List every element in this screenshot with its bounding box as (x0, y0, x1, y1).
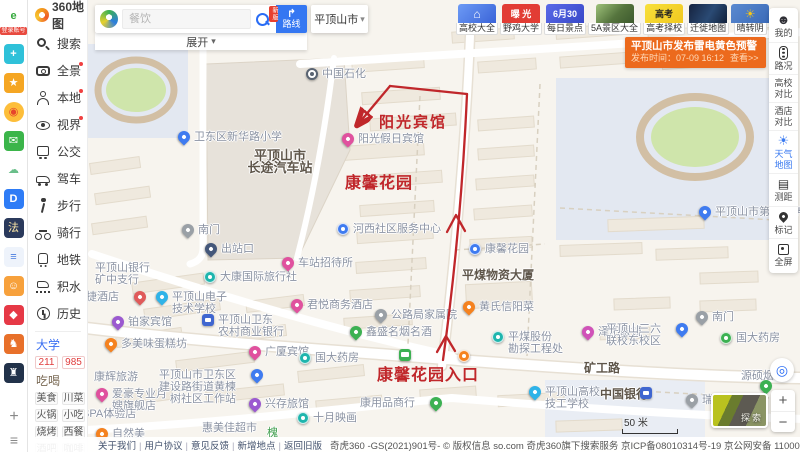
sidebar-item-car[interactable]: 驾车 (35, 165, 87, 192)
tool-label: 酒店对比 (773, 106, 794, 127)
pin-icon (777, 210, 790, 223)
poi-marker (337, 223, 349, 235)
poi-marker (373, 307, 390, 324)
red-app-icon[interactable]: ◆ (4, 305, 24, 325)
food-tag[interactable]: 火锅 (35, 409, 58, 422)
poi-marker (154, 289, 171, 306)
footer-link[interactable]: 关于我们 (98, 441, 136, 452)
chip-label: 高校大全 (456, 23, 498, 35)
chip-gaokao[interactable]: 高考高考择校 (643, 4, 685, 35)
tag-985[interactable]: 985 (62, 356, 85, 369)
poi-label: 车站招待所 (298, 257, 353, 269)
tool-label: 全屏 (773, 257, 794, 268)
food-tag[interactable]: 小吃 (62, 409, 85, 422)
tag-211[interactable]: 211 (35, 356, 58, 369)
poi-label: 公路局家属院 (391, 309, 457, 321)
favorites-star-icon[interactable]: ★ (4, 73, 24, 93)
poi-marker (694, 309, 711, 326)
food-tag[interactable]: 川菜 (62, 392, 85, 405)
poi-label: 康馨花园 (485, 243, 529, 255)
browser-sidebar: e登录账号+★◉✉☁D法≡☺◆♞♜+ ≡ (0, 0, 28, 452)
alert-view-link[interactable]: 查看>> (730, 53, 759, 64)
sidebar-item-flood[interactable]: 积水 (35, 273, 87, 300)
red-dot-badge (79, 116, 83, 120)
divider (35, 331, 81, 332)
chip-label: 高考择校 (643, 23, 685, 35)
sidebar-item-label: 视界 (57, 116, 81, 133)
poi-label: 平顶山电子技术学校 (172, 291, 227, 315)
expand-bar[interactable]: 展开 (95, 33, 307, 50)
chip-label: 迁徙地图 (687, 23, 729, 35)
poi-marker (697, 204, 714, 221)
label-spa-store[interactable]: SPA体验店 (82, 408, 136, 420)
poi-marker (280, 255, 297, 272)
poi-label: 大康国际旅行社 (220, 271, 297, 283)
browser-e-logo[interactable]: e (4, 6, 24, 26)
chip-label: 晴转阴 (734, 23, 767, 35)
alert-title: 平顶山市发布雷电黄色预警 (631, 40, 760, 53)
poi-label: 康辉旅游 (94, 371, 138, 383)
poi-marker (469, 243, 481, 255)
poi-marker (340, 131, 357, 148)
history-icon (35, 306, 51, 322)
satellite-toggle-thumbnail[interactable]: 探索 (711, 393, 768, 428)
tool-label: 路况 (773, 61, 794, 72)
section-title-university: 大学 (36, 336, 87, 353)
expose-tile-image: 曝 光 (502, 4, 540, 23)
poi-marker (110, 314, 127, 331)
ruler-icon (778, 175, 789, 193)
poi-label: 君悦商务酒店 (307, 299, 373, 311)
poi-marker (180, 222, 197, 239)
walk-icon (35, 198, 51, 214)
sidebar-item-search[interactable]: 搜索 (35, 30, 87, 57)
sidebar-item-label: 驾车 (57, 170, 81, 187)
chip-daily[interactable]: 6月30每日景点 (544, 4, 586, 35)
label-huimeijia-market[interactable]: 惠美佳超市 (202, 422, 257, 434)
poi-label: 兴存旅馆 (265, 398, 309, 410)
uni-tile-image: ⌂ (458, 4, 496, 23)
sidebar-item-walk[interactable]: 步行 (35, 192, 87, 219)
poi-label: 卫东区新华路小学 (194, 131, 282, 143)
sun-icon (778, 132, 790, 150)
poi-marker (527, 384, 544, 401)
sidebar-item-label: 全景 (57, 62, 81, 79)
sidebar-item-pano[interactable]: 全景 (35, 57, 87, 84)
poi-label: 平顶山卫东农村商业银行 (218, 314, 284, 338)
poi-marker (299, 352, 311, 364)
poi-label: 南门 (712, 311, 734, 323)
poi-marker (94, 386, 111, 403)
tool-高校对比[interactable]: 高校对比 (769, 74, 798, 102)
chip-uni[interactable]: ⌂高校大全 (456, 4, 498, 35)
footer-links: 关于我们|用户协议|意见反馈|新增地点|返回旧版 (98, 438, 322, 452)
chip-weather[interactable]: ☀晴转阴 (731, 4, 769, 35)
sidebar-menu: 搜索全景本地视界公交驾车步行骑行地铁积水历史 (35, 30, 87, 327)
flood-icon (35, 279, 51, 295)
poi-label: 黄氏信阳菜 (479, 301, 534, 313)
chip-expose[interactable]: 曝 光野鸡大学 (500, 4, 542, 35)
chip-migrate[interactable]: 迁徙地图 (687, 4, 729, 35)
game-fight-icon[interactable]: ♞ (4, 334, 24, 354)
poi-label: 出站口 (221, 243, 254, 255)
add-app-button[interactable]: + (0, 408, 28, 426)
poi-marker (176, 129, 193, 146)
tool-label: 标记 (773, 225, 794, 236)
poi-marker (247, 396, 264, 413)
screen-icon (778, 244, 789, 255)
sidebar-item-label: 本地 (57, 89, 81, 106)
red-dot-badge (79, 62, 83, 66)
poi-marker (428, 395, 445, 412)
poi-marker (306, 68, 318, 80)
local-icon (35, 90, 51, 106)
search-card: 新版 ↱ 路线 (95, 5, 307, 33)
food-tag[interactable]: 美食 (35, 392, 58, 405)
game-monkey-icon[interactable]: ☺ (4, 276, 24, 296)
daily-tile-image: 6月30 (546, 4, 584, 23)
app-logo-text: 360地图 (52, 0, 87, 32)
tool-label: 天气地图 (773, 149, 794, 170)
sidebar-item-history[interactable]: 历史 (35, 300, 87, 327)
tool-酒店对比[interactable]: 酒店对比 (769, 102, 798, 130)
chip-label: 野鸡大学 (500, 23, 542, 35)
app-list-button[interactable]: ≡ (0, 432, 28, 448)
search-icon (35, 36, 51, 52)
poi-label: 康用品商行 (360, 397, 415, 409)
poi-label: 河西社区服务中心 (353, 223, 441, 235)
poi-marker (492, 331, 504, 343)
sidebar-item-label: 公交 (57, 143, 81, 160)
zoom-in-button[interactable]: + (771, 390, 795, 411)
label-kuanggong-road[interactable]: 矿工路 (584, 362, 620, 374)
poi-marker (132, 289, 149, 306)
poi-marker (580, 324, 597, 341)
chip-label: 每日景点 (544, 23, 586, 35)
sidebar-item-label: 积水 (57, 278, 81, 295)
app-window: 中国石化卫东区新华路小学平顶山市长途汽车站阳光假日宾馆南门出站口河西社区服务中心… (0, 0, 800, 452)
health-app-icon[interactable]: + (4, 44, 24, 64)
poi-marker (297, 412, 309, 424)
poi-marker (204, 271, 216, 283)
bus-icon (35, 144, 51, 160)
poi-marker (640, 387, 652, 399)
city-selector[interactable]: 平顶山市 (311, 5, 368, 33)
tool-标记[interactable]: 标记 (769, 206, 798, 239)
scenic-tile-image (596, 4, 634, 23)
sidebar-item-bus[interactable]: 公交 (35, 138, 87, 165)
view-icon (35, 117, 51, 133)
sidebar-item-label: 地铁 (57, 251, 81, 268)
sidebar-item-local[interactable]: 本地 (35, 84, 87, 111)
footer-link[interactable]: 用户协议 (144, 441, 182, 452)
poi-marker (247, 344, 264, 361)
route-button[interactable]: 新版 ↱ 路线 (276, 5, 307, 33)
poi-label: 南门 (198, 224, 220, 236)
footer-copyright: 奇虎360 -GS(2021)901号- © 版权信息 so.com 奇虎360… (330, 438, 800, 452)
scale-line (622, 429, 678, 434)
bike-icon (35, 225, 51, 241)
tool-全屏[interactable]: 全屏 (769, 238, 798, 271)
label-pingmei-materials-building[interactable]: 平煤物资大厦 (462, 269, 534, 281)
locate-button[interactable]: ◎ (770, 358, 794, 382)
poi-label: 鑫盛名烟名酒 (366, 326, 432, 338)
sidebar-item-label: 骑行 (57, 224, 81, 241)
poi-label: 铂家宾馆 (128, 316, 172, 328)
tool-我的[interactable]: 我的 (769, 10, 798, 42)
sidebar-item-metro[interactable]: 地铁 (35, 246, 87, 273)
label-kanghui-travel[interactable]: 康辉旅游 (94, 371, 138, 383)
chip-label: 5A景区大全 (588, 23, 641, 35)
poi-marker (103, 336, 120, 353)
poi-marker (684, 392, 701, 409)
map-sidebar: 360地图 搜索全景本地视界公交驾车步行骑行地铁积水历史 大学 211985 吃… (28, 0, 88, 452)
scale-bar: 50 米 (622, 414, 678, 434)
poi-label: SPA体验店 (82, 408, 136, 420)
tool-测距[interactable]: 测距 (769, 173, 798, 206)
poi-marker (249, 367, 266, 384)
tool-路况[interactable]: 路况 (769, 42, 798, 75)
poi-marker (458, 350, 470, 362)
map-logo-icon (35, 8, 49, 22)
search-icon[interactable] (255, 12, 270, 27)
route-arrow-icon: ↱ (287, 9, 296, 19)
poi-label: 阳光假日宾馆 (358, 133, 424, 145)
map-pin-logo-icon (100, 10, 118, 28)
footer-bar: 关于我们|用户协议|意见反馈|新增地点|返回旧版 奇虎360 -GS(2021)… (28, 437, 800, 452)
red-dot-badge (79, 89, 83, 93)
section-title-food: 吃喝 (36, 372, 87, 389)
poi-marker (461, 299, 478, 316)
footer-link[interactable]: 意见反馈 (191, 441, 229, 452)
metro-icon (35, 252, 51, 268)
poi-marker (720, 332, 732, 344)
poi-marker (399, 349, 411, 361)
poi-label: 国大药房 (315, 352, 359, 364)
login-badge[interactable]: 登录账号 (0, 27, 27, 35)
footer-link[interactable]: 新增地点 (237, 441, 275, 452)
poi-label: 中国石化 (322, 68, 366, 80)
face-icon (777, 11, 791, 29)
poi-label: 国大药房 (736, 332, 780, 344)
label-longdistance-bus-station[interactable]: 平顶山市长途汽车站 (247, 150, 312, 174)
poi-label: 平顶山市长途汽车站 (247, 150, 312, 174)
poi-label: 平顶山高校技工学校 (545, 386, 600, 410)
car-icon (35, 171, 51, 187)
chip-scenic[interactable]: 5A景区大全 (588, 4, 641, 35)
poi-marker (289, 297, 306, 314)
poi-label: 多美味蛋糕坊 (121, 338, 187, 350)
zoom-control: + − (771, 390, 795, 432)
footer-link[interactable]: 返回旧版 (284, 441, 322, 452)
poi-marker (203, 241, 220, 258)
sidebar-item-label: 搜索 (57, 35, 81, 52)
poi-label: 平顶山市卫东区建设路街道黄楝树社区工作站 (159, 369, 236, 405)
tool-label: 测距 (773, 192, 794, 203)
d-app-icon[interactable]: D (4, 189, 24, 209)
weather-tile-image: ☀ (731, 4, 769, 23)
zoom-out-button[interactable]: − (771, 411, 795, 432)
map-tools-panel: 我的路况高校对比酒店对比天气地图测距标记全屏 (769, 8, 798, 273)
explore-label: 探索 (741, 411, 763, 424)
pano-icon (35, 63, 51, 79)
doc-icon[interactable]: ≡ (4, 247, 24, 267)
poi-label: 平顶山三六联校东校区 (606, 323, 661, 347)
poi-marker (348, 324, 365, 341)
migrate-tile-image (689, 4, 727, 23)
weibo-icon[interactable]: ◉ (4, 102, 24, 122)
alert-time: 发布时间：07-09 16:12 (631, 53, 724, 64)
sidebar-item-bike[interactable]: 骑行 (35, 219, 87, 246)
sidebar-item-label: 历史 (57, 305, 81, 322)
cloud-icon[interactable]: ☁ (4, 160, 24, 180)
gaokao-tile-image: 高考 (645, 4, 683, 23)
new-badge: 新版 (269, 6, 278, 22)
poi-marker (202, 314, 214, 326)
university-tags: 211985 (35, 356, 87, 369)
app-logo: 360地图 (35, 0, 87, 30)
tool-label: 高校对比 (773, 78, 794, 99)
signal-icon (779, 46, 788, 60)
tool-label: 我的 (773, 28, 794, 39)
search-input[interactable] (122, 9, 251, 29)
tool-天气地图[interactable]: 天气地图 (769, 130, 798, 173)
mail-icon[interactable]: ✉ (4, 131, 24, 151)
poi-label: 平煤物资大厦 (462, 269, 534, 281)
top-feature-chips: ⌂高校大全曝 光野鸡大学6月30每日景点5A景区大全高考高考择校迁徙地图☀晴转阴 (456, 4, 769, 35)
scale-label: 50 米 (624, 414, 678, 429)
poi-marker (674, 321, 691, 338)
game-dark-icon[interactable]: ♜ (4, 363, 24, 383)
weather-alert-banner[interactable]: 平顶山市发布雷电黄色预警 发布时间：07-09 16:12 查看>> (625, 37, 766, 68)
poi-label: 平顶山银行矿中支行 (95, 262, 150, 286)
poi-label: 平煤股份勘探工程处 (508, 331, 563, 355)
poi-label: 矿工路 (584, 362, 620, 374)
sidebar-item-view[interactable]: 视界 (35, 111, 87, 138)
poi-label: 惠美佳超市 (202, 422, 257, 434)
poi-label: 十月映画 (313, 412, 357, 424)
sidebar-item-label: 步行 (57, 197, 81, 214)
law-qa-icon[interactable]: 法 (4, 218, 24, 238)
label-pds-bank-branch[interactable]: 平顶山银行矿中支行 (95, 262, 150, 286)
